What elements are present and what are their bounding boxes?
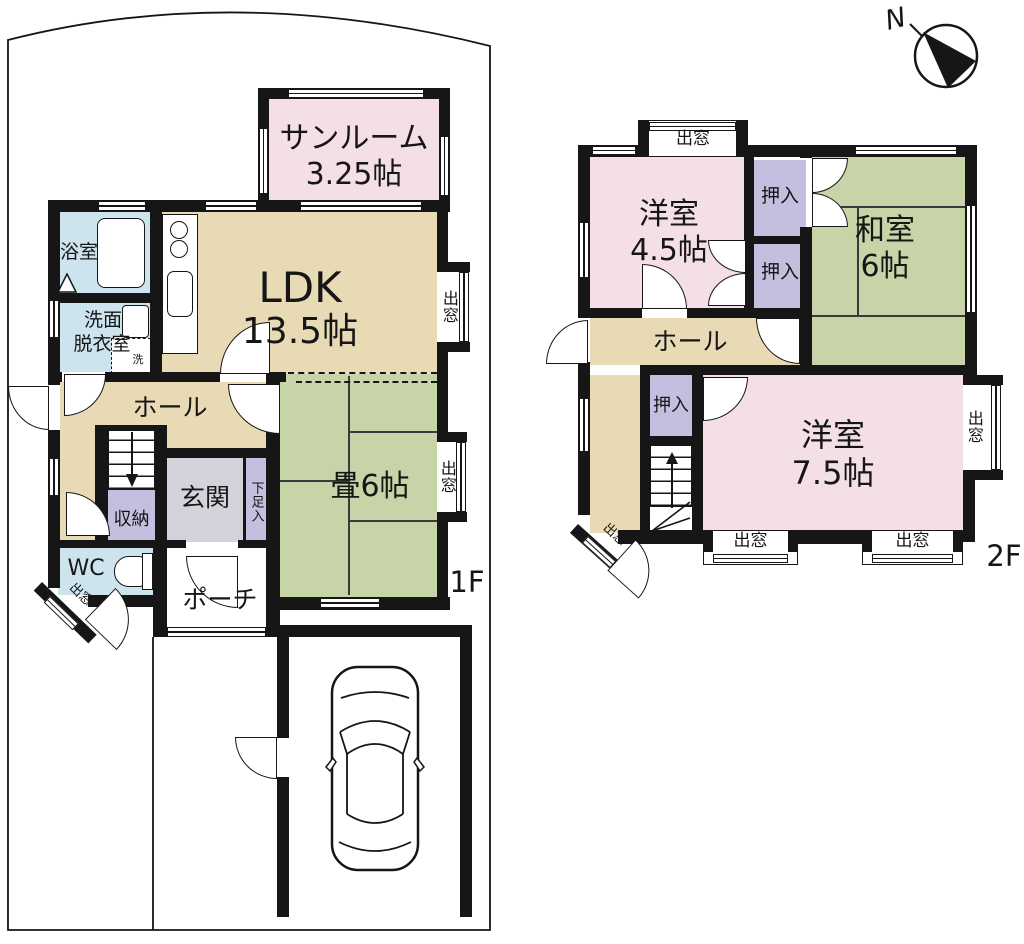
bay-bottom-right-label: 出窓 [880, 532, 945, 551]
wall [167, 448, 266, 458]
shoe-cabinet-label: 下足入 [248, 464, 263, 540]
window [966, 205, 976, 313]
wall [277, 625, 472, 637]
japanese-label: 和室 [815, 214, 955, 248]
wall [58, 540, 186, 548]
wall [692, 375, 703, 533]
western2-size: 7.5帖 [763, 456, 903, 492]
window [713, 554, 788, 563]
wall [437, 212, 448, 262]
entrance-label: 玄関 [175, 484, 235, 512]
wall [640, 365, 977, 375]
closet-b-label: 押入 [756, 262, 804, 283]
closet-a-label: 押入 [756, 186, 804, 207]
wall [238, 540, 268, 548]
wall [437, 262, 470, 272]
window [49, 300, 59, 338]
wall [243, 455, 246, 542]
window [259, 128, 268, 194]
wall [437, 342, 470, 352]
wall [277, 637, 289, 738]
wall [687, 308, 800, 318]
wall [703, 530, 713, 552]
storage-label: 収納 [108, 510, 155, 530]
western1-label: 洋室 [604, 198, 734, 232]
car [325, 662, 425, 877]
bay-top-label: 出窓 [658, 130, 728, 149]
bay-ldk-label: 出窓 [440, 284, 458, 330]
floor1-label: 1F [437, 566, 497, 598]
wall [754, 236, 806, 244]
wall [48, 293, 162, 303]
western2-label: 洋室 [763, 418, 903, 454]
japanese-size: 6帖 [815, 250, 955, 284]
wall [48, 542, 60, 588]
bay-tatami-label: 出窓 [438, 454, 456, 500]
window [579, 222, 589, 278]
wall [437, 432, 467, 442]
closet-c-label: 押入 [650, 396, 692, 416]
window [205, 201, 257, 211]
wall [460, 625, 472, 917]
window [300, 201, 422, 211]
washroom-label-line1: 洗面 [68, 310, 138, 331]
wall [963, 480, 975, 542]
tatami-label: 畳6帖 [310, 470, 430, 504]
bath-label: 浴室 [58, 242, 100, 263]
wall [437, 352, 448, 374]
wall [277, 777, 289, 917]
wall [437, 374, 448, 432]
window [579, 398, 589, 452]
wall [266, 545, 280, 637]
porch-threshold [167, 627, 266, 637]
floorplan: N [0, 0, 1024, 944]
wall [578, 308, 642, 318]
window [855, 146, 957, 155]
wall [788, 530, 798, 552]
window [872, 554, 953, 563]
wall [963, 375, 1003, 385]
wall [736, 120, 748, 157]
room-hall-1f [167, 430, 266, 448]
toilet-bowl [114, 556, 144, 587]
tatami-line [812, 315, 965, 317]
window [49, 458, 59, 496]
wall [800, 145, 812, 158]
wall [640, 375, 650, 533]
wall [150, 200, 162, 382]
sunroom-label: サンルーム [278, 122, 430, 156]
washer-label: 洗 [128, 354, 148, 366]
ldk-size: 13.5帖 [225, 312, 375, 352]
wall [155, 425, 167, 548]
western1-size: 4.5帖 [604, 234, 734, 268]
wall [48, 372, 62, 382]
wall [162, 372, 220, 382]
ldk-label: LDK [240, 264, 360, 311]
open-partition-dashed [296, 381, 437, 383]
stairs-down-arrow [124, 430, 140, 488]
floor2-label: 2F [985, 540, 1023, 572]
wall [800, 308, 812, 365]
window [98, 201, 146, 211]
wall [953, 530, 963, 552]
kitchen-sink [167, 271, 193, 317]
tatami-line [348, 520, 437, 522]
window [456, 442, 466, 512]
window [440, 136, 449, 196]
window [320, 598, 380, 608]
window [592, 146, 636, 155]
window [459, 272, 469, 342]
wall [638, 120, 649, 157]
open-partition-dashed [288, 372, 437, 374]
bay-right-label: 出窓 [965, 402, 983, 452]
bath-door-marker [57, 273, 77, 293]
window [991, 385, 1001, 470]
wall [798, 530, 862, 544]
tatami-line [348, 431, 437, 433]
sunroom-size: 3.25帖 [278, 158, 430, 192]
wall [963, 470, 1003, 480]
stairs-up-arrow [664, 450, 680, 510]
bay-bottom-left-label: 出窓 [718, 532, 783, 551]
wall [153, 548, 167, 637]
room-hall-2f [590, 375, 640, 533]
stove-burner [170, 240, 188, 258]
north-compass: N [882, 2, 1012, 106]
hall-2f-label: ホール [640, 328, 740, 356]
stove-burner [170, 221, 188, 239]
window [288, 89, 424, 98]
north-label: N [882, 2, 909, 37]
wall [105, 372, 162, 382]
north-arrow [923, 32, 976, 88]
wall [437, 512, 467, 522]
porch-label: ポーチ [180, 586, 260, 614]
wall [862, 530, 872, 552]
hall-1f-label: ホール [120, 394, 220, 422]
bathtub [97, 218, 145, 288]
toilet-tank [142, 553, 153, 590]
